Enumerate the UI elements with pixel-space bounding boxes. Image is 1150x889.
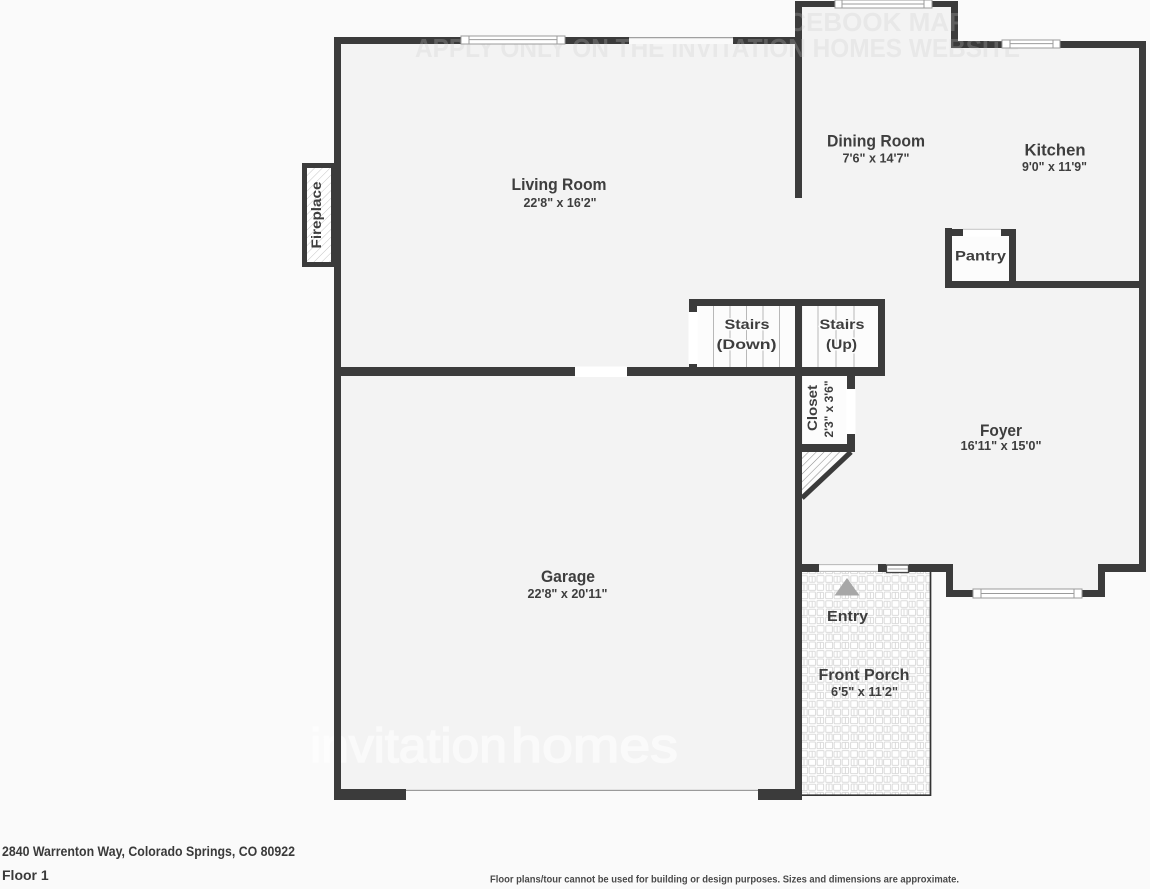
svg-text:(Down): (Down) [717, 337, 777, 352]
svg-text:6'5" x 11'2": 6'5" x 11'2" [831, 684, 898, 699]
svg-text:7'6" x 14'7": 7'6" x 14'7" [843, 151, 910, 166]
svg-text:Pantry: Pantry [955, 248, 1006, 264]
svg-text:Fireplace: Fireplace [308, 181, 324, 248]
svg-text:16'11" x 15'0": 16'11" x 15'0" [961, 438, 1042, 453]
svg-text:Front Porch: Front Porch [819, 667, 910, 684]
svg-text:2840 Warrenton Way, Colorado S: 2840 Warrenton Way, Colorado Springs, CO… [2, 843, 295, 859]
svg-text:2'3" x 3'6": 2'3" x 3'6" [824, 381, 836, 438]
svg-text:Kitchen: Kitchen [1025, 141, 1086, 160]
svg-text:(Up): (Up) [826, 337, 857, 352]
svg-text:Stairs: Stairs [725, 317, 770, 332]
svg-text:Entry: Entry [827, 609, 868, 625]
svg-text:22'8" x 16'2": 22'8" x 16'2" [524, 195, 597, 210]
svg-text:22'8" x 20'11": 22'8" x 20'11" [528, 586, 608, 601]
svg-text:Floor 1: Floor 1 [2, 867, 49, 883]
svg-text:Living Room: Living Room [512, 175, 607, 194]
svg-text:Stairs: Stairs [820, 317, 865, 332]
svg-text:Dining Room: Dining Room [827, 132, 925, 151]
svg-text:homes: homes [511, 720, 678, 773]
svg-text:9'0" x 11'9": 9'0" x 11'9" [1022, 159, 1087, 174]
svg-text:Floor plans/tour cannot be use: Floor plans/tour cannot be used for buil… [490, 875, 959, 886]
svg-text:Closet: Closet [805, 384, 820, 431]
svg-text:Garage: Garage [541, 567, 595, 586]
